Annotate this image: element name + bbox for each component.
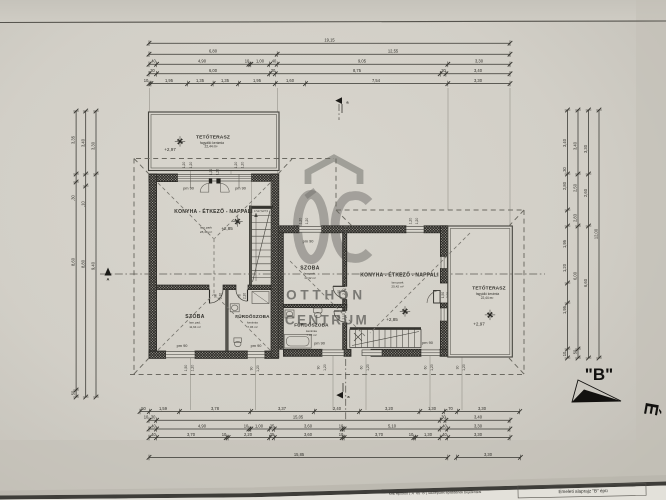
svg-text:10: 10 — [144, 415, 149, 420]
svg-text:1,20: 1,20 — [191, 365, 195, 372]
svg-text:1,20: 1,20 — [323, 364, 327, 371]
svg-text:13,32 m²: 13,32 m² — [304, 276, 315, 280]
svg-text:90: 90 — [317, 366, 321, 370]
svg-text:8,75: 8,75 — [353, 68, 362, 73]
svg-text:1,20: 1,20 — [562, 263, 567, 272]
svg-text:3,30: 3,30 — [484, 452, 493, 457]
svg-text:Emeleti alaprajz "B" épü: Emeleti alaprajz "B" épü — [558, 488, 608, 494]
svg-text:1,20: 1,20 — [462, 364, 466, 371]
svg-text:2,20: 2,20 — [244, 432, 253, 437]
svg-text:3,40: 3,40 — [562, 138, 567, 147]
svg-text:50: 50 — [71, 390, 76, 395]
svg-text:1,95: 1,95 — [562, 239, 567, 248]
svg-text:9,05: 9,05 — [358, 59, 367, 64]
svg-text:90: 90 — [337, 290, 341, 294]
svg-text:,40: ,40 — [441, 432, 447, 437]
svg-text:3,20: 3,20 — [385, 406, 394, 411]
svg-text:1,60: 1,60 — [286, 78, 295, 83]
svg-text:pm 90: pm 90 — [183, 185, 195, 190]
svg-text:5,10: 5,10 — [388, 423, 397, 428]
svg-text:3,30: 3,30 — [478, 406, 487, 411]
svg-text:3,40: 3,40 — [80, 138, 85, 147]
svg-text:3,60: 3,60 — [304, 432, 313, 437]
svg-text:1,95: 1,95 — [165, 78, 174, 83]
svg-text:17x17,6/27,5: 17x17,6/27,5 — [254, 210, 268, 213]
svg-text:pm 90: pm 90 — [177, 343, 189, 348]
svg-text:+2,85: +2,85 — [386, 317, 398, 322]
svg-text:,40: ,40 — [150, 432, 156, 437]
svg-text:,30: ,30 — [270, 68, 276, 73]
svg-text:11,64 m²: 11,64 m² — [189, 325, 201, 329]
svg-text:4,90: 4,90 — [198, 423, 207, 428]
svg-text:1,59: 1,59 — [159, 406, 168, 411]
svg-text:,25: ,25 — [269, 432, 275, 437]
svg-text:,30: ,30 — [440, 68, 446, 73]
svg-text:60: 60 — [424, 366, 428, 370]
svg-text:30: 30 — [456, 366, 460, 370]
svg-text:90: 90 — [250, 367, 254, 371]
svg-text:8,80: 8,80 — [80, 259, 85, 268]
svg-text:1,20: 1,20 — [216, 169, 220, 175]
svg-text:6,60: 6,60 — [583, 278, 588, 287]
svg-text:2,40: 2,40 — [333, 406, 342, 411]
svg-text:10: 10 — [144, 78, 149, 83]
svg-text:1,20: 1,20 — [241, 162, 245, 169]
svg-text:2,10: 2,10 — [342, 288, 346, 294]
svg-text:,40: ,40 — [150, 59, 156, 64]
svg-text:1,50: 1,50 — [441, 292, 445, 298]
svg-text:22,44 m²: 22,44 m² — [204, 145, 218, 149]
svg-text:3,40: 3,40 — [474, 68, 483, 73]
svg-text:60: 60 — [360, 366, 364, 370]
svg-text:FÜRDŐSZOBA: FÜRDŐSZOBA — [235, 313, 270, 319]
svg-text:90: 90 — [213, 294, 217, 298]
svg-text:1,20: 1,20 — [299, 218, 303, 225]
svg-text:1,30: 1,30 — [424, 432, 433, 437]
svg-text:"B": "B" — [585, 365, 613, 384]
svg-text:,30: ,30 — [149, 68, 155, 73]
svg-text:10: 10 — [562, 351, 567, 356]
svg-text:1,00: 1,00 — [255, 423, 264, 428]
svg-text:SZOBA: SZOBA — [185, 314, 205, 320]
svg-text:,40: ,40 — [271, 59, 277, 64]
svg-text:15,05: 15,05 — [293, 415, 304, 420]
svg-text:,25: ,25 — [269, 423, 275, 428]
svg-text:3,30: 3,30 — [474, 432, 483, 437]
svg-text:+2,97: +2,97 — [164, 147, 176, 152]
svg-text:pm 90: pm 90 — [303, 238, 315, 243]
svg-text:1,20: 1,20 — [234, 162, 238, 169]
svg-text:10: 10 — [222, 432, 227, 437]
svg-text:,30: ,30 — [562, 166, 567, 172]
svg-text:12,55: 12,55 — [388, 49, 399, 54]
svg-text:15,85: 15,85 — [294, 452, 305, 457]
svg-text:25,42 m²: 25,42 m² — [391, 285, 403, 289]
svg-text:pm 90: pm 90 — [251, 343, 263, 348]
svg-text:1,20: 1,20 — [409, 218, 413, 225]
svg-text:4,90: 4,90 — [198, 59, 207, 64]
svg-text:10: 10 — [244, 423, 249, 428]
svg-text:,30: ,30 — [440, 415, 446, 420]
svg-text:,50: ,50 — [140, 406, 146, 411]
svg-text:OTTHON: OTTHON — [286, 288, 366, 303]
svg-text:2,10: 2,10 — [243, 293, 247, 299]
svg-text:1,00: 1,00 — [256, 59, 265, 64]
svg-text:1,20: 1,20 — [366, 364, 370, 371]
svg-text:3,30: 3,30 — [474, 78, 483, 83]
svg-text:22,44 m²: 22,44 m² — [481, 296, 494, 300]
svg-text:,10: ,10 — [80, 200, 85, 206]
svg-text:3,60: 3,60 — [304, 423, 313, 428]
svg-text:,40: ,40 — [150, 423, 156, 428]
svg-text:1,95: 1,95 — [562, 305, 567, 314]
svg-text:,40: ,40 — [441, 423, 447, 428]
svg-text:3,30: 3,30 — [583, 144, 588, 153]
svg-text:10: 10 — [409, 432, 414, 437]
svg-text:3,30: 3,30 — [474, 423, 483, 428]
svg-text:1,30: 1,30 — [428, 406, 437, 411]
svg-text:1,20: 1,20 — [415, 218, 419, 225]
svg-text:3,40: 3,40 — [474, 415, 483, 420]
svg-text:3,40: 3,40 — [573, 141, 578, 150]
svg-text:12,00: 12,00 — [594, 228, 599, 239]
svg-text:50: 50 — [573, 349, 578, 354]
svg-text:3,35: 3,35 — [71, 135, 76, 144]
svg-text:1,35: 1,35 — [221, 78, 230, 83]
svg-text:pm 90: pm 90 — [422, 340, 434, 345]
svg-text:1,35: 1,35 — [196, 78, 205, 83]
svg-text:19,15: 19,15 — [324, 38, 335, 43]
svg-text:8,60: 8,60 — [71, 257, 76, 266]
svg-text:pm 90: pm 90 — [314, 341, 326, 346]
svg-text:1,20: 1,20 — [430, 364, 434, 371]
svg-text:1,20: 1,20 — [189, 162, 193, 169]
svg-text:2,80: 2,80 — [562, 181, 567, 190]
svg-text:,70: ,70 — [447, 406, 453, 411]
svg-text:SZOBA: SZOBA — [300, 265, 320, 271]
svg-text:+2,97: +2,97 — [473, 322, 485, 327]
svg-text:,30: ,30 — [71, 194, 76, 200]
svg-text:FÜRDŐSZOBA: FÜRDŐSZOBA — [294, 322, 329, 328]
svg-text:1,20: 1,20 — [209, 169, 213, 175]
svg-text:TETŐTERASZ: TETŐTERASZ — [196, 134, 230, 141]
svg-text:2,60: 2,60 — [583, 188, 588, 197]
svg-text:10: 10 — [245, 59, 250, 64]
svg-text:,30: ,30 — [150, 415, 156, 420]
svg-text:3,70: 3,70 — [187, 432, 196, 437]
svg-text:7,54: 7,54 — [372, 78, 381, 83]
svg-text:3,78: 3,78 — [211, 406, 220, 411]
svg-text:1,50: 1,50 — [184, 365, 188, 372]
svg-text:2,50: 2,50 — [573, 183, 578, 192]
svg-text:1,95: 1,95 — [253, 78, 262, 83]
svg-text:9,40: 9,40 — [91, 261, 96, 270]
svg-text:6,80: 6,80 — [209, 49, 218, 54]
svg-text:10: 10 — [339, 423, 344, 428]
svg-text:76: 76 — [238, 294, 242, 298]
svg-text:TETŐTERASZ: TETŐTERASZ — [472, 284, 505, 291]
svg-text:6,00: 6,00 — [209, 68, 218, 73]
svg-text:3,30: 3,30 — [475, 59, 484, 64]
svg-text:6,00: 6,00 — [573, 271, 578, 280]
svg-text:2,83: 2,83 — [573, 213, 578, 222]
svg-text:75: 75 — [337, 315, 341, 319]
svg-text:2,10: 2,10 — [218, 293, 222, 299]
svg-text:7,06 m²: 7,06 m² — [247, 325, 257, 329]
svg-text:10: 10 — [339, 432, 344, 437]
svg-text:pm 90: pm 90 — [235, 185, 247, 190]
svg-text:1,20: 1,20 — [256, 365, 260, 372]
svg-text:1,20: 1,20 — [305, 218, 309, 225]
svg-text:28,38 m²: 28,38 m² — [200, 230, 212, 234]
svg-text:3,37: 3,37 — [278, 406, 287, 411]
svg-text:3,70: 3,70 — [375, 432, 384, 437]
svg-text:3,30: 3,30 — [91, 141, 96, 150]
svg-text:1,20: 1,20 — [182, 162, 186, 169]
svg-text:A: A — [107, 277, 110, 282]
